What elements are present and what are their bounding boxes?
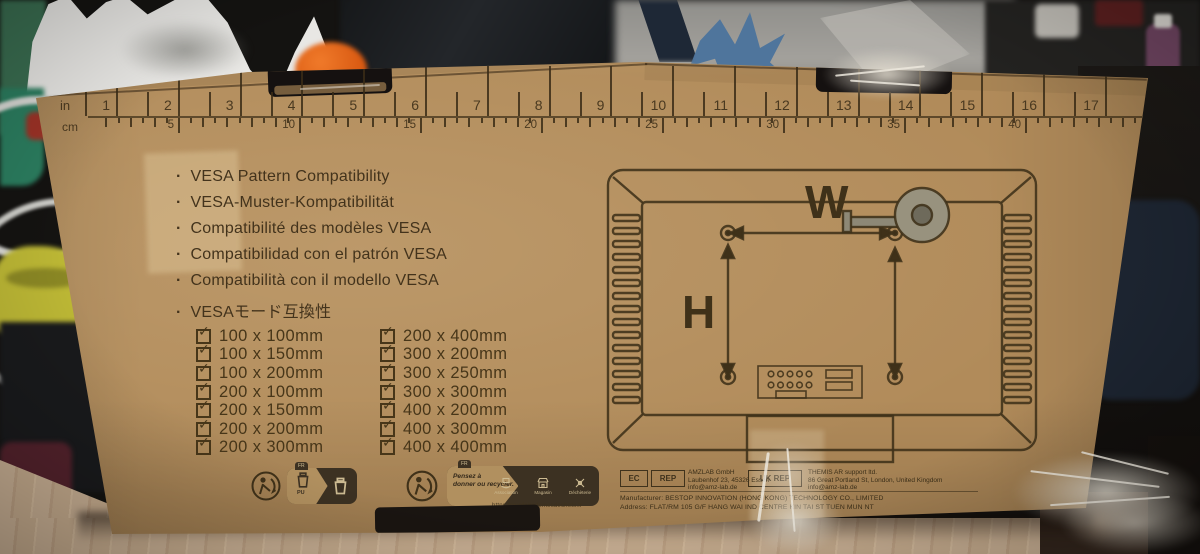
right-dimension-arrow [889,248,901,377]
cm-number: 35 [876,119,900,131]
cardboard-box: in cm 1234567891011121314151617510152025… [0,0,1200,554]
check-glyph: ✓ [198,361,210,377]
language-line: ·VESAモード互換性 [176,298,506,322]
store-icon [537,477,549,489]
ruler-tick [549,66,551,116]
ruler-tick [239,118,241,123]
ruler-tick [796,66,798,116]
vesa-mounting-holes [721,226,902,384]
vesa-size-label: 100 x 150mm [219,345,323,364]
cm-number: 40 [997,119,1021,131]
ruler-tick [710,118,712,127]
vesa-size-row: ✓200 x 300mm [196,439,371,458]
ruler-cm-unit: cm [62,120,78,134]
inch-number: 11 [704,97,728,113]
language-text: Compatibilità con il modello VESA [191,272,440,290]
vesa-size-row: ✓100 x 200mm [196,364,371,383]
vesa-size-row: ✓200 x 150mm [196,401,371,420]
white-box-item [1035,4,1079,38]
check-glyph: ✓ [198,398,210,414]
ruler-tick [916,118,918,123]
vesa-size-label: 200 x 100mm [219,383,323,402]
ruler-tick [1122,118,1124,127]
ruler-tick [299,118,301,133]
ruler-tick [363,66,365,116]
language-line: ·VESA Pattern Compatibility [176,168,506,186]
vesa-size-label: 400 x 400mm [403,438,507,457]
sorting-bin-icon [295,472,311,488]
ruler-tick [577,118,579,123]
channel-magasin: Magasin [528,477,558,495]
ruler-tick [844,118,846,123]
language-text: VESAモード互換性 [191,298,332,322]
ruler-tick [384,118,386,123]
vesa-size-row: ✓100 x 100mm [196,327,371,346]
ruler-tick [202,118,204,127]
vesa-size-row: ✓200 x 100mm [196,383,371,402]
info-tri-badge-small: PU [287,468,357,504]
bullet-icon: · [176,272,182,290]
checkbox-checked-icon: ✓ [196,440,211,455]
triman-recycle-icon [250,470,282,502]
ruler-tick [1049,118,1051,127]
ruler-tick [965,118,967,123]
inch-number: 10 [642,97,666,113]
ruler-tick [251,118,253,127]
ruler-tick [868,118,870,123]
inch-number: 7 [457,97,481,113]
ruler-tick [614,118,616,127]
ruler-tick [118,118,120,123]
inch-number: 16 [1013,97,1037,113]
material-code: PU [297,490,305,496]
bullet-icon: · [176,304,182,322]
language-text: Compatibilidad con el patrón VESA [191,246,448,264]
ruler-tick [610,66,612,116]
vesa-size-label: 100 x 200mm [219,364,323,383]
ruler-tick [747,118,749,123]
ruler-tick [487,66,489,116]
channel-label: Déchèterie [569,490,591,495]
ruler-tick [565,118,567,127]
manufacturer-line: Manufacturer: BESTOP INNOVATION (HONG KO… [620,495,884,502]
ruler-tick [698,118,700,123]
checkbox-checked-icon: ✓ [380,440,395,455]
uk-rep-line: THEMIS AR support ltd. [808,469,988,477]
language-text: VESA-Muster-Kompatibilität [191,194,395,212]
inch-number: 5 [333,97,357,113]
ruler-tick [602,118,604,123]
ruler-tick [831,118,833,127]
check-glyph: ✓ [198,435,210,451]
ruler-tick [335,118,337,123]
language-text: Compatibilité des modèles VESA [191,220,432,238]
vesa-size-label: 400 x 300mm [403,420,507,439]
ruler-tick [444,118,446,127]
vesa-size-label: 400 x 200mm [403,401,507,420]
cm-number: 10 [271,119,295,131]
ruler-tick [1110,118,1112,123]
ruler-tick [674,118,676,123]
bullet-icon: · [176,246,182,264]
language-line: ·Compatibilidad con el patrón VESA [176,246,506,264]
ruler-tick [723,118,725,123]
ruler-tick [425,66,427,116]
cm-number: 25 [634,119,658,131]
check-glyph: ✓ [198,342,210,358]
inch-number: 4 [271,97,295,113]
ruler-tick [904,118,906,133]
port-holes [768,371,812,388]
inch-number: 17 [1075,97,1099,113]
ruler-tick [807,118,809,127]
ruler-tick [505,118,507,123]
ec-box: EC [620,470,648,487]
inch-number: 12 [766,97,790,113]
bullet-icon: · [176,220,182,238]
ruler-tick [301,66,303,116]
ruler-tick [1037,118,1039,123]
cm-number: 5 [150,119,174,131]
vesa-size-label: 100 x 100mm [219,327,323,346]
ruler-tick [977,118,979,127]
check-glyph: ✓ [198,380,210,396]
ruler-tick [940,118,942,123]
vesa-size-label: 200 x 150mm [219,401,323,420]
vesa-size-row: ✓400 x 200mm [380,401,555,420]
vesa-size-label: 300 x 200mm [403,345,507,364]
channel-label: Magasin [534,490,551,495]
vesa-size-column-2: ✓200 x 400mm ✓300 x 200mm ✓300 x 250mm ✓… [380,327,555,457]
ruler-tick [686,118,688,127]
inch-number: 2 [148,97,172,113]
ruler-tick [105,118,107,127]
vesa-size-row: ✓300 x 200mm [380,346,555,365]
ruler-tick [432,118,434,123]
info-tri-badge-large: Pensez à donner ou recycler. Association… [447,466,599,506]
ruler-tick [372,118,374,127]
ruler-tick [783,118,785,133]
width-dimension-arrow [730,227,893,239]
vesa-size-column-1: ✓100 x 100mm ✓100 x 150mm ✓100 x 200mm ✓… [196,327,371,457]
sculpture-shadow [120,20,250,80]
vesa-size-row: ✓300 x 250mm [380,364,555,383]
bullet-icon: · [176,168,182,186]
ruler-tick [928,118,930,127]
vesa-size-row: ✓200 x 400mm [380,327,555,346]
inch-number: 1 [86,97,110,113]
ruler-tick [1061,118,1063,123]
language-line: ·Compatibilità con il modello VESA [176,272,506,290]
ruler-tick [735,118,737,127]
tools-icon [574,477,586,489]
ruler-tick [493,118,495,127]
monitor-rear-diagram: W H [600,160,1040,465]
uk-rep-address: THEMIS AR support ltd. 86 Great Portland… [808,469,988,492]
language-text: VESA Pattern Compatibility [191,168,390,186]
ruler-tick [553,118,555,123]
ruler-tick [347,118,349,127]
vesa-size-label: 300 x 300mm [403,383,507,402]
ruler-tick [989,118,991,123]
bottle-cap [1154,14,1172,28]
vesa-size-row: ✓200 x 200mm [196,420,371,439]
recycle-channels: Association Magasin Déchèterie [491,470,595,502]
rep-box: REP [651,470,685,487]
donation-hand-icon [500,477,512,489]
ruler-tick [1098,118,1100,127]
connector-panel [758,366,862,398]
ruler-tick [589,118,591,127]
ruler-tick [1025,118,1027,133]
ruler-tick [214,118,216,123]
ruler-tick [626,118,628,123]
triman-recycle-icon [405,469,439,503]
check-glyph: ✓ [382,398,394,414]
ruler-tick [981,66,983,116]
cm-number: 30 [755,119,779,131]
ruler-tick [1134,118,1136,123]
ruler-tick [130,118,132,127]
ruler-tick [672,66,674,116]
inch-number: 13 [828,97,852,113]
fr-country-tag: FR [295,462,308,470]
ruler-tick [85,92,87,116]
fr-country-tag: FR [458,460,471,468]
ruler-tick [819,118,821,123]
inch-number: 3 [210,97,234,113]
ruler-tick [795,118,797,123]
vesa-size-row: ✓400 x 400mm [380,439,555,458]
vesa-size-label: 300 x 250mm [403,364,507,383]
cm-number: 20 [513,119,537,131]
ruler-tick [178,118,180,133]
height-dimension-arrow [722,245,734,377]
inch-number: 6 [395,97,419,113]
bullet-icon: · [176,194,182,212]
vesa-size-row: ✓100 x 150mm [196,346,371,365]
inch-number: 9 [580,97,604,113]
inch-number: 15 [951,97,975,113]
ruler-tick [456,118,458,123]
ruler-tick [142,118,144,123]
ruler-tick [190,118,192,123]
uk-rep-line: 86 Great Portland St, London, United Kin… [808,477,988,485]
ruler-tick [311,118,313,123]
check-glyph: ✓ [198,417,210,433]
ruler-tick [541,118,543,133]
vesa-size-row: ✓300 x 300mm [380,383,555,402]
check-glyph: ✓ [382,380,394,396]
bottom-slot-cutout [375,505,540,534]
check-glyph: ✓ [382,435,394,451]
ruler-tick [263,118,265,123]
height-label: H [682,286,715,338]
ruler-tick [1086,118,1088,123]
ruler-tick [662,118,664,133]
language-line: ·VESA-Muster-Kompatibilität [176,194,506,212]
vesa-size-label: 200 x 200mm [219,420,323,439]
check-glyph: ✓ [382,417,394,433]
vent-slats [613,215,1031,403]
cm-number: 15 [392,119,416,131]
channel-association: Association [491,477,521,495]
photo-vesa-box: in cm 1234567891011121314151617510152025… [0,0,1200,554]
ruler-tick [734,66,736,116]
channel-label: Association [494,490,518,495]
ruler-tick [360,118,362,123]
vesa-size-label: 200 x 400mm [403,327,507,346]
ruler-tick [481,118,483,123]
vesa-compatibility-list: ·VESA Pattern Compatibility ·VESA-Muster… [176,168,506,330]
vesa-size-row: ✓400 x 300mm [380,420,555,439]
language-line: ·Compatibilité des modèles VESA [176,220,506,238]
sorting-zone-light: PU [287,468,328,504]
inch-number: 8 [519,97,543,113]
check-glyph: ✓ [198,324,210,340]
ec-rep-mark: EC REP [620,470,685,487]
check-glyph: ✓ [382,342,394,358]
vesa-size-label: 200 x 300mm [219,438,323,457]
check-glyph: ✓ [382,324,394,340]
ruler-tick [240,66,242,116]
waste-bin-icon [333,477,348,495]
check-glyph: ✓ [382,361,394,377]
ruler-tick [226,118,228,127]
ruler-tick [952,118,954,127]
ruler-tick [468,118,470,127]
ruler-tick [1073,118,1075,127]
ruler-tick [420,118,422,133]
channel-decheterie: Déchèterie [565,477,595,495]
red-item [1095,0,1143,26]
ruler-inch-unit: in [60,98,70,113]
ruler-tick [323,118,325,127]
ruler-tick [856,118,858,127]
